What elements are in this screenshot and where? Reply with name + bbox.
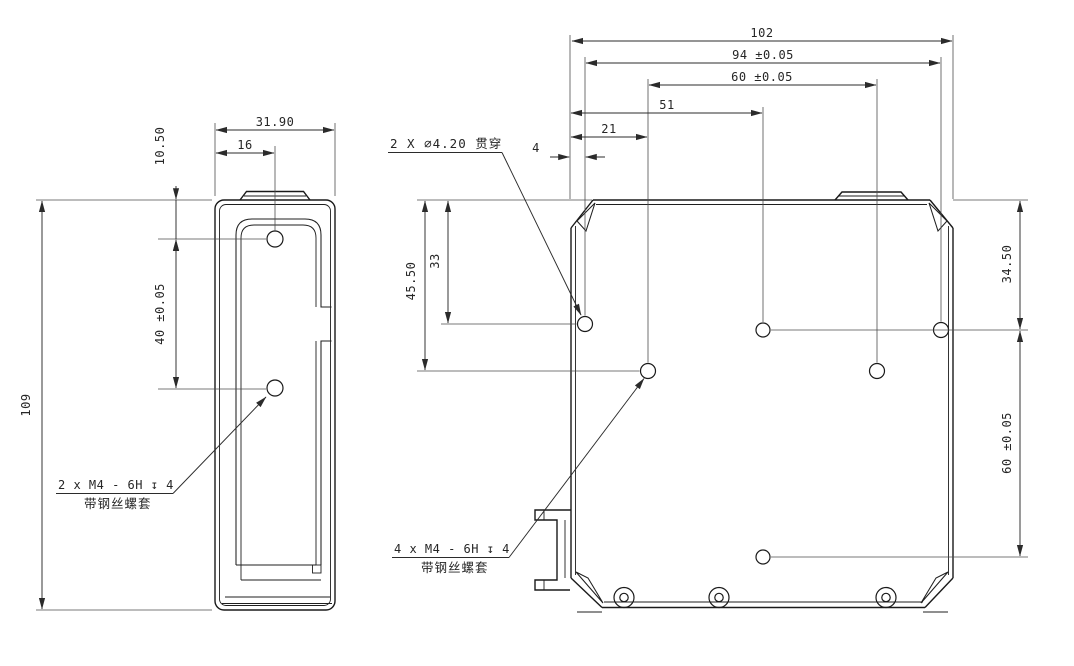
technical-drawing-canvas: 31.90 16 10.50 40 ±0.05 109 2 x M4 - 6H … [0, 0, 1074, 666]
dim-51: 51 [659, 98, 674, 112]
side-thread-note-line1: 2 x M4 - 6H ↧ 4 [58, 478, 174, 492]
side-thread-note-line2: 带钢丝螺套 [84, 496, 152, 511]
dim-33: 33 [428, 253, 442, 268]
dim-side-width: 31.90 [256, 115, 295, 129]
dim-34-50: 34.50 [1000, 245, 1014, 284]
dim-side-height: 109 [19, 393, 33, 416]
dim-45-50: 45.50 [404, 262, 418, 301]
dim-4: 4 [532, 141, 540, 155]
dim-hole-span-94: 94 ±0.05 [732, 48, 794, 62]
dim-overall-width: 102 [750, 26, 773, 40]
bottom-thread-note-line1: 4 x M4 - 6H ↧ 4 [394, 542, 510, 556]
cad-drawing: 31.90 16 10.50 40 ±0.05 109 2 x M4 - 6H … [0, 0, 1074, 666]
dim-21: 21 [601, 122, 616, 136]
dim-hole-span-60: 60 ±0.05 [731, 70, 793, 84]
dim-side-hole-offset: 16 [237, 138, 252, 152]
dim-side-hole-from-top: 10.50 [153, 127, 167, 166]
dim-60-vertical: 60 ±0.05 [1000, 412, 1014, 474]
dim-side-hole-pitch: 40 ±0.05 [153, 283, 167, 345]
through-hole-note-text: 2 X ⌀4.20 贯穿 [390, 136, 502, 151]
bottom-thread-note-line2: 带钢丝螺套 [421, 560, 489, 575]
